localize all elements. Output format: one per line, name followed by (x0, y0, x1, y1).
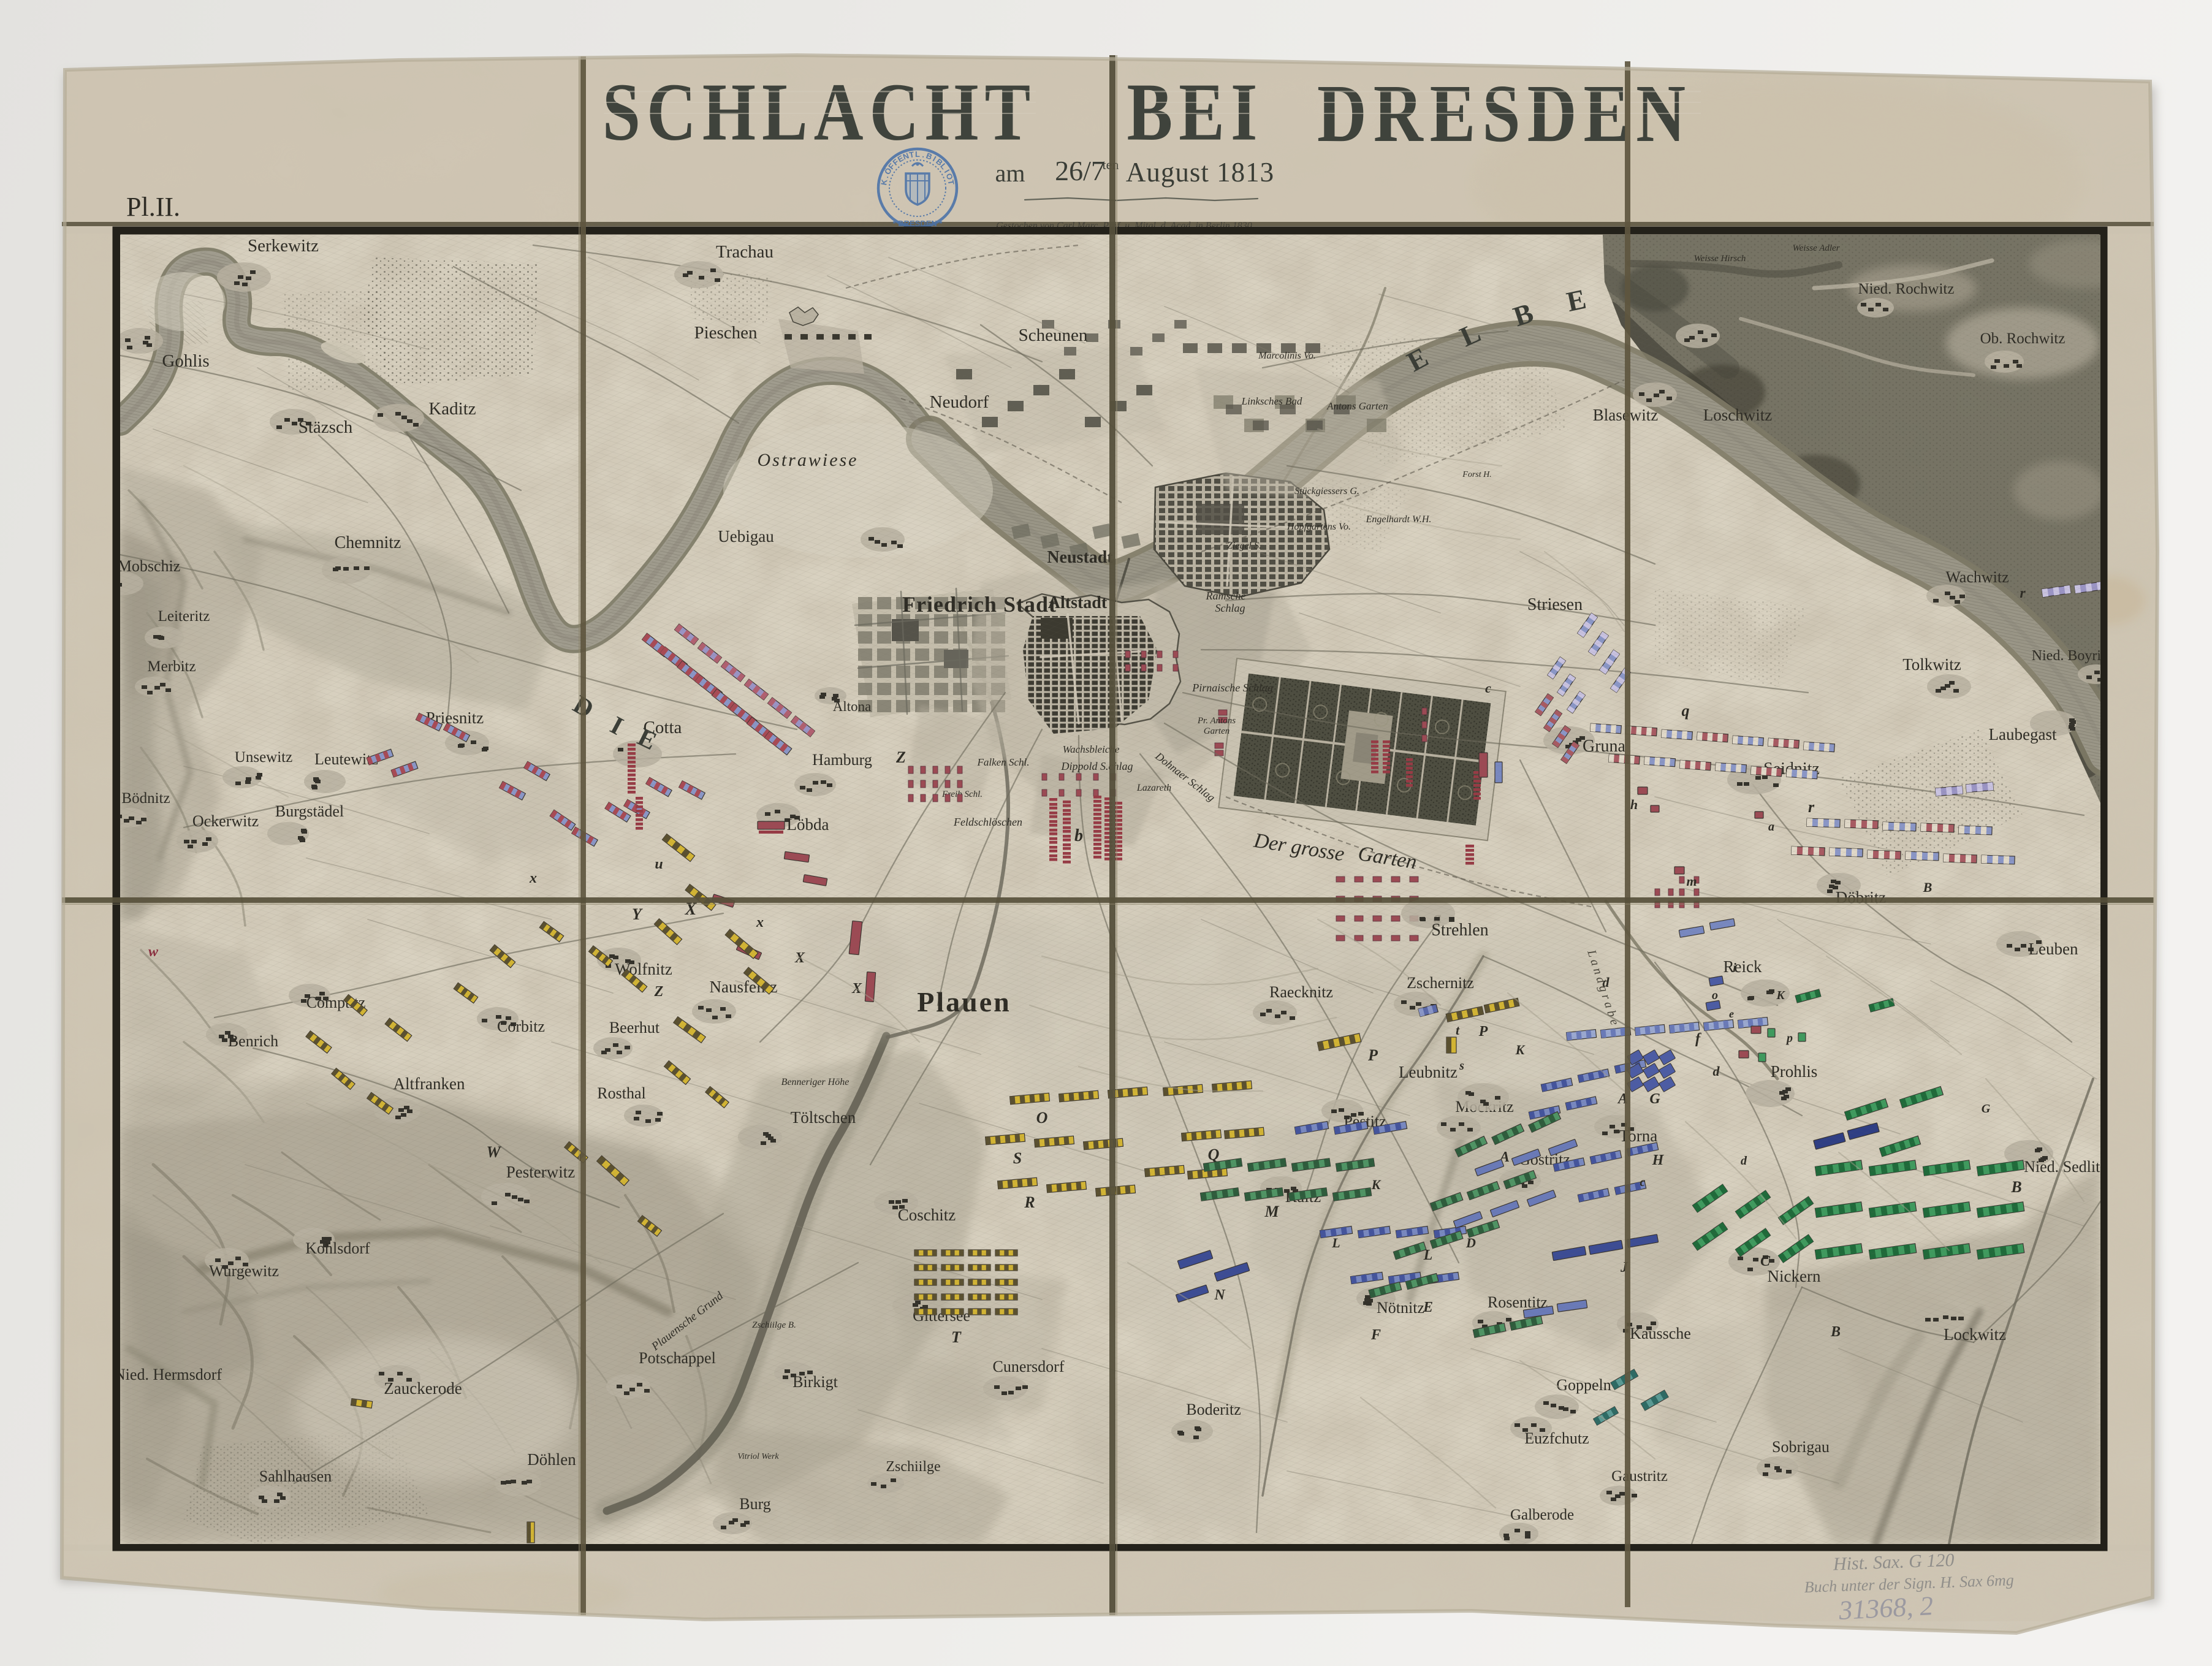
svg-text:Hist. Sax. G 120: Hist. Sax. G 120 (1832, 1550, 1955, 1575)
svg-text:31368, 2: 31368, 2 (1838, 1591, 1934, 1626)
svg-text:BEI: BEI (1127, 66, 1264, 158)
svg-text:Pl.II.: Pl.II. (126, 192, 180, 222)
svg-text:L: L (915, 150, 920, 159)
svg-text:am: am (995, 159, 1025, 187)
svg-text:26/7: 26/7 (1055, 155, 1105, 186)
svg-text:August 1813: August 1813 (1126, 157, 1274, 188)
svg-text:SCHLACHT: SCHLACHT (602, 66, 1036, 158)
